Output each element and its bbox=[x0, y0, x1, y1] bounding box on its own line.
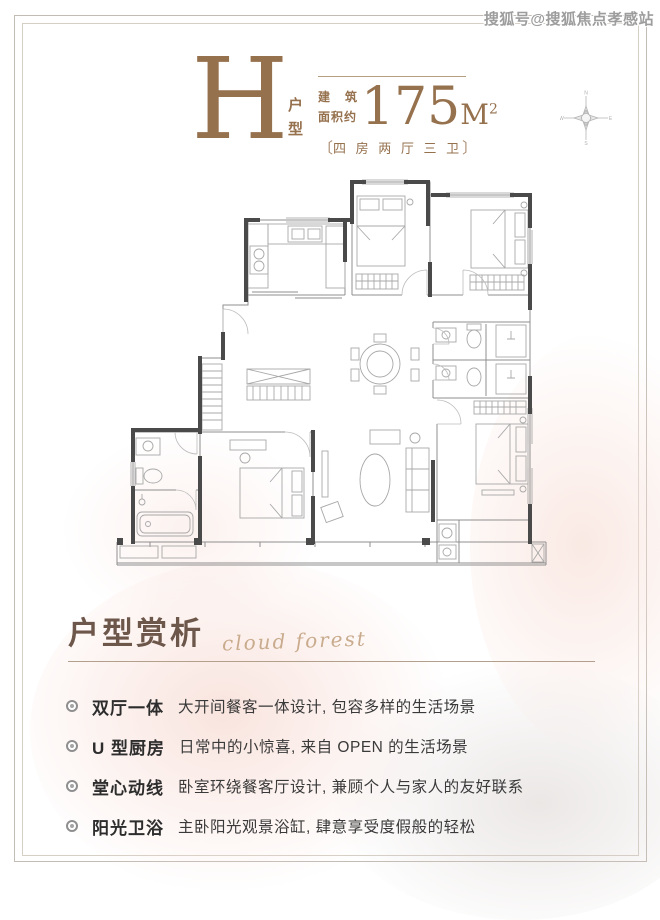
floor-plan bbox=[90, 168, 560, 600]
area-unit-letter: M bbox=[460, 98, 489, 131]
bed-icon bbox=[240, 468, 304, 518]
wardrobe-icon bbox=[474, 401, 526, 414]
compass-north: N bbox=[584, 91, 588, 97]
layout-spec-text: 四 房 两 厅 三 卫 bbox=[333, 138, 462, 157]
bullet-ring-icon bbox=[66, 700, 78, 712]
sofa-icon bbox=[406, 448, 429, 512]
area-prefix-char2: 筑 bbox=[345, 88, 357, 105]
unit-type-label: 户型 bbox=[284, 97, 305, 145]
armchair-icon bbox=[321, 501, 343, 522]
feature-label: 阳光卫浴 bbox=[92, 814, 164, 839]
bracket-left: 〔 bbox=[318, 137, 333, 158]
section-title: 户型赏析 bbox=[68, 608, 204, 653]
bullet-ring-icon bbox=[66, 740, 78, 752]
feature-desc: 卧室环绕餐客厅设计, 兼顾个人与家人的友好联系 bbox=[178, 775, 524, 797]
toilet-icon bbox=[136, 468, 162, 484]
feature-desc: 大开间餐客一体设计, 包容多样的生活场景 bbox=[178, 695, 476, 717]
sink-icon bbox=[136, 438, 160, 455]
layout-spec: 〔 四 房 两 厅 三 卫 〕 bbox=[318, 137, 466, 158]
area-prefix-char1: 建 bbox=[318, 88, 330, 105]
area-unit: M2 bbox=[460, 101, 498, 131]
bracket-right: 〕 bbox=[462, 137, 477, 158]
compass-west: W bbox=[560, 116, 564, 122]
feature-desc: 日常中的小惊喜, 来自 OPEN 的生活场景 bbox=[179, 735, 468, 757]
kitchen bbox=[248, 224, 346, 288]
compass-east: E bbox=[609, 116, 612, 122]
plan-windows bbox=[131, 180, 532, 504]
feature-row: 双厅一体 大开间餐客一体设计, 包容多样的生活场景 bbox=[66, 686, 606, 726]
hall-closets bbox=[202, 364, 310, 430]
living-room bbox=[321, 430, 429, 523]
section-header: 户型赏析 cloud forest bbox=[68, 608, 598, 662]
bathrooms-east bbox=[436, 324, 526, 394]
plan-outer-walls bbox=[133, 182, 530, 542]
area-prefix: 建 筑 面积约 bbox=[318, 88, 357, 131]
area-unit-sup: 2 bbox=[489, 101, 498, 117]
compass-south: S bbox=[584, 141, 588, 146]
bedroom-master bbox=[474, 401, 528, 495]
area-prefix-line2: 面积约 bbox=[318, 108, 357, 125]
bed-icon bbox=[357, 196, 405, 266]
feature-label: 堂心动线 bbox=[92, 774, 164, 799]
bathroom-west bbox=[136, 438, 193, 536]
bed-icon bbox=[471, 210, 528, 268]
sohu-watermark: 搜狐号@搜狐焦点孝感站 bbox=[484, 8, 654, 29]
feature-label: U 型厨房 bbox=[92, 734, 165, 759]
feature-list: 双厅一体 大开间餐客一体设计, 包容多样的生活场景 U 型厨房 日常中的小惊喜,… bbox=[66, 686, 606, 846]
kitchen-sink-icon bbox=[288, 226, 322, 242]
feature-row: 堂心动线 卧室环绕餐客厅设计, 兼顾个人与家人的友好联系 bbox=[66, 766, 606, 806]
bullet-ring-icon bbox=[66, 780, 78, 792]
feature-desc: 主卧阳光观景浴缸, 肆意享受度假般的轻松 bbox=[178, 815, 476, 837]
feature-label: 双厅一体 bbox=[92, 694, 164, 719]
feature-row: U 型厨房 日常中的小惊喜, 来自 OPEN 的生活场景 bbox=[66, 726, 606, 766]
bathtub-icon bbox=[137, 512, 193, 536]
area-value: 175 bbox=[361, 84, 460, 131]
bullet-ring-icon bbox=[66, 820, 78, 832]
plan-interior-walls bbox=[117, 182, 546, 565]
dining-table-icon bbox=[351, 334, 419, 394]
compass-icon: N S E W bbox=[560, 90, 612, 146]
unit-type-letter: H bbox=[191, 44, 289, 156]
rug-icon bbox=[360, 454, 390, 506]
bedroom-north-1 bbox=[356, 196, 413, 289]
feature-row: 阳光卫浴 主卧阳光观景浴缸, 肆意享受度假般的轻松 bbox=[66, 806, 606, 846]
tv-cabinet-icon bbox=[322, 451, 328, 497]
stove-icon bbox=[250, 246, 268, 274]
bedroom-north-2 bbox=[470, 202, 528, 290]
bedroom-south-west bbox=[230, 440, 304, 518]
section-divider bbox=[68, 661, 595, 662]
area-info-block: 建 筑 面积约 175 M2 〔 四 房 两 厅 三 卫 〕 bbox=[318, 76, 466, 158]
section-subtitle-script: cloud forest bbox=[222, 626, 368, 655]
console-icon bbox=[370, 430, 400, 444]
wardrobe-icon bbox=[470, 275, 524, 290]
